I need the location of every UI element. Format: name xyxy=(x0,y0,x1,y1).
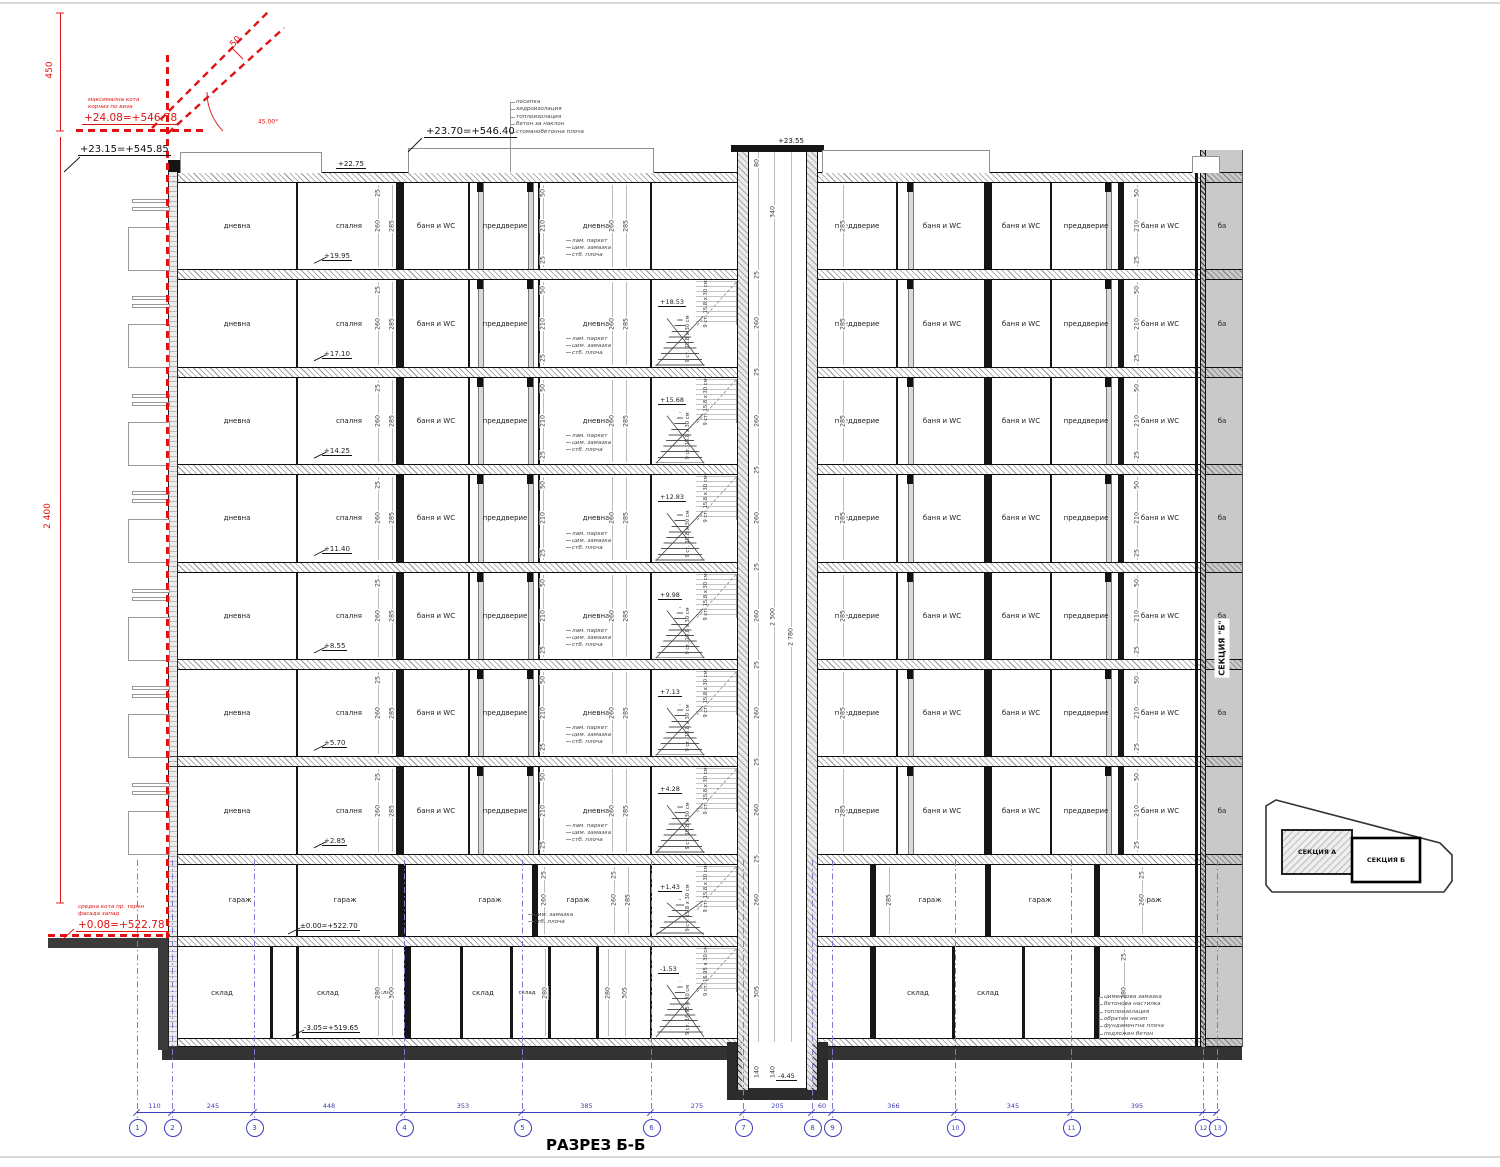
line-overlay xyxy=(0,0,1500,1167)
drawing-canvas: 8034025260252602526025260252602526025260… xyxy=(0,0,1500,1167)
